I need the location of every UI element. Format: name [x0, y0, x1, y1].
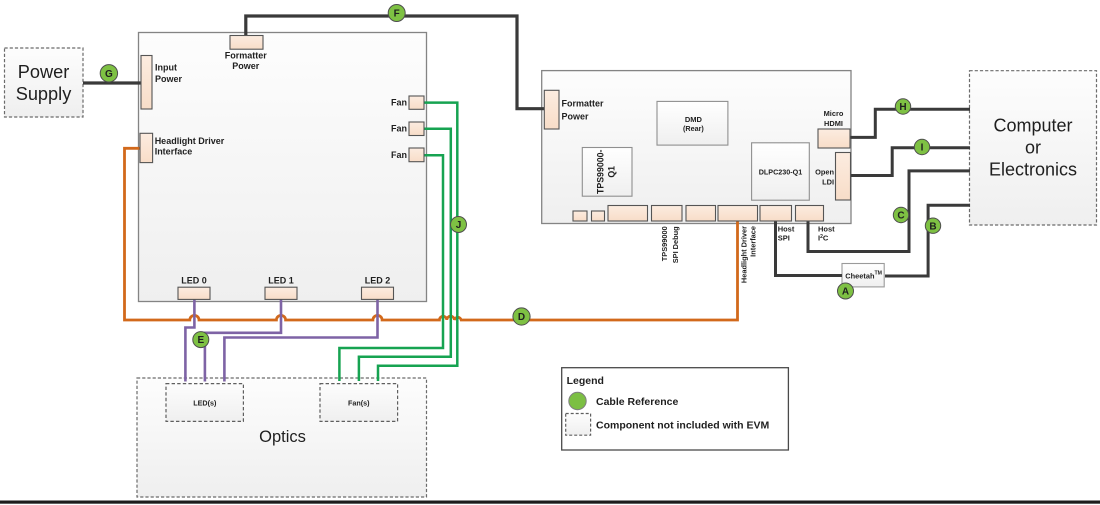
- svg-text:Computer: Computer: [993, 116, 1072, 136]
- svg-text:Component not included with EV: Component not included with EVM: [596, 419, 769, 431]
- svg-text:TPS99000: TPS99000: [660, 226, 669, 261]
- svg-text:Formatter: Formatter: [225, 51, 268, 61]
- svg-text:B: B: [929, 221, 936, 232]
- svg-text:Open: Open: [815, 167, 834, 176]
- svg-text:Electronics: Electronics: [989, 160, 1077, 180]
- svg-text:H: H: [899, 102, 906, 113]
- svg-text:I2C: I2C: [818, 234, 829, 243]
- svg-text:G: G: [105, 69, 113, 80]
- svg-text:Micro: Micro: [824, 109, 844, 118]
- svg-text:Fan: Fan: [391, 150, 407, 160]
- svg-text:Headlight Driver: Headlight Driver: [155, 136, 225, 146]
- svg-text:Interface: Interface: [155, 146, 193, 156]
- svg-text:HDMI: HDMI: [824, 119, 843, 128]
- svg-text:Interface: Interface: [749, 226, 758, 257]
- svg-text:TPS99000-: TPS99000-: [595, 149, 605, 194]
- svg-text:Power: Power: [155, 74, 183, 84]
- svg-text:Legend: Legend: [567, 375, 604, 387]
- svg-text:Host: Host: [778, 225, 795, 234]
- svg-text:LED 1: LED 1: [268, 276, 294, 286]
- svg-text:Supply: Supply: [16, 84, 73, 104]
- svg-text:I: I: [921, 143, 924, 154]
- svg-text:A: A: [842, 287, 849, 298]
- svg-text:SPI: SPI: [778, 234, 790, 243]
- svg-text:DLPC230-Q1: DLPC230-Q1: [759, 167, 803, 176]
- svg-text:Headlight Driver: Headlight Driver: [739, 226, 748, 283]
- svg-text:D: D: [518, 312, 525, 323]
- svg-text:LED 0: LED 0: [181, 276, 207, 286]
- svg-text:DMD: DMD: [685, 115, 703, 124]
- svg-text:LED(s): LED(s): [193, 398, 217, 407]
- svg-text:LED 2: LED 2: [365, 276, 391, 286]
- svg-text:J: J: [456, 220, 462, 231]
- svg-text:Fan: Fan: [391, 98, 407, 108]
- svg-text:(Rear): (Rear): [683, 124, 704, 133]
- svg-text:F: F: [394, 9, 400, 20]
- svg-text:E: E: [197, 335, 204, 346]
- svg-text:Fan: Fan: [391, 124, 407, 134]
- svg-text:Power: Power: [232, 61, 260, 71]
- svg-text:Input: Input: [155, 63, 177, 73]
- svg-text:or: or: [1025, 138, 1041, 158]
- svg-text:Cable Reference: Cable Reference: [596, 396, 678, 408]
- svg-text:Power: Power: [562, 112, 590, 122]
- svg-text:Formatter: Formatter: [562, 99, 605, 109]
- svg-text:Optics: Optics: [259, 428, 306, 446]
- svg-text:Host: Host: [818, 225, 835, 234]
- svg-text:C: C: [897, 211, 904, 222]
- svg-text:LDI: LDI: [822, 177, 834, 186]
- svg-text:Power: Power: [18, 62, 70, 82]
- svg-text:SPI Debug: SPI Debug: [671, 226, 680, 263]
- svg-text:Q1: Q1: [606, 166, 616, 178]
- svg-text:Fan(s): Fan(s): [348, 398, 370, 407]
